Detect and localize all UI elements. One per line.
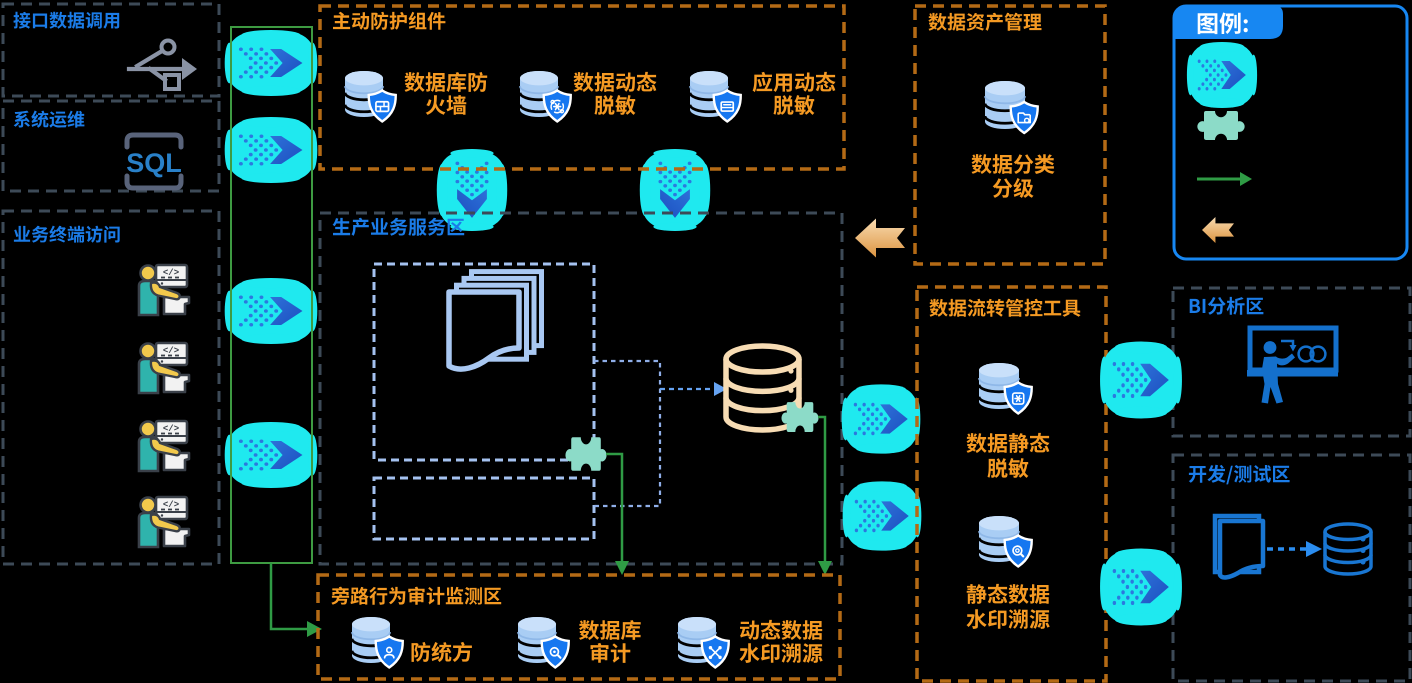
svg-text:SQL: SQL [126,148,182,178]
svg-text:</>: </> [163,346,179,356]
svg-text:</>: </> [163,500,179,510]
svg-text:</>: </> [163,424,179,434]
svg-text:</>: </> [163,268,179,278]
